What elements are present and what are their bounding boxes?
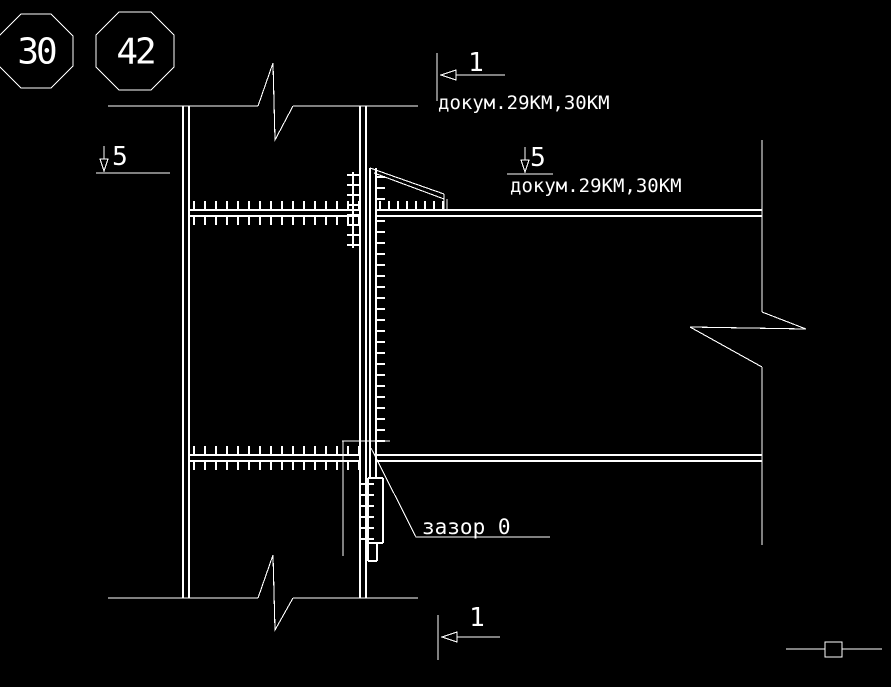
node-marker-42: 42 (96, 12, 174, 90)
weld-ticks (194, 461, 359, 470)
break-symbol (690, 312, 806, 367)
section-label: 1 (468, 48, 484, 78)
beam (376, 210, 762, 461)
section-mark-right: 5 докум.29КМ,30КМ (507, 143, 682, 197)
top-cut-line (108, 63, 418, 140)
node-marker-label: 42 (116, 32, 154, 73)
node-marker-30: 30 (0, 14, 73, 88)
column (183, 106, 366, 598)
break-symbol (258, 555, 293, 630)
cad-drawing-canvas[interactable]: 30 42 (0, 0, 891, 687)
left-arrowhead-icon (442, 632, 457, 642)
section-label: 5 (112, 142, 128, 172)
gap-label: зазор 0 (422, 515, 511, 539)
lower-stiffener (190, 446, 360, 470)
grip-marker[interactable] (786, 642, 882, 657)
break-symbol (258, 63, 293, 140)
down-arrowhead-icon (521, 160, 529, 172)
weld-ticks (194, 201, 359, 210)
weld-ticks (194, 446, 359, 455)
beam-cut-line (690, 140, 806, 545)
haunch-diagonal (370, 168, 444, 194)
grip-box[interactable] (825, 642, 842, 657)
down-arrowhead-icon (100, 159, 108, 171)
weld-ticks (380, 201, 443, 210)
haunch-diagonal (374, 173, 444, 199)
bottom-cut-line (108, 555, 418, 630)
haunch (370, 168, 447, 210)
section-mark-top: 1 докум.29КМ,30КМ (437, 48, 610, 114)
seat-bracket (361, 478, 383, 561)
section-note: докум.29КМ,30КМ (438, 92, 610, 114)
left-arrowhead-icon (441, 70, 456, 80)
section-label: 5 (530, 143, 546, 173)
node-marker-label: 30 (17, 32, 56, 73)
section-mark-bottom: 1 (438, 603, 500, 660)
upper-stiffener (190, 201, 360, 225)
section-label: 1 (469, 603, 485, 633)
weld-ticks (194, 216, 359, 225)
section-note: докум.29КМ,30КМ (510, 175, 682, 197)
section-mark-left: 5 (96, 142, 170, 173)
